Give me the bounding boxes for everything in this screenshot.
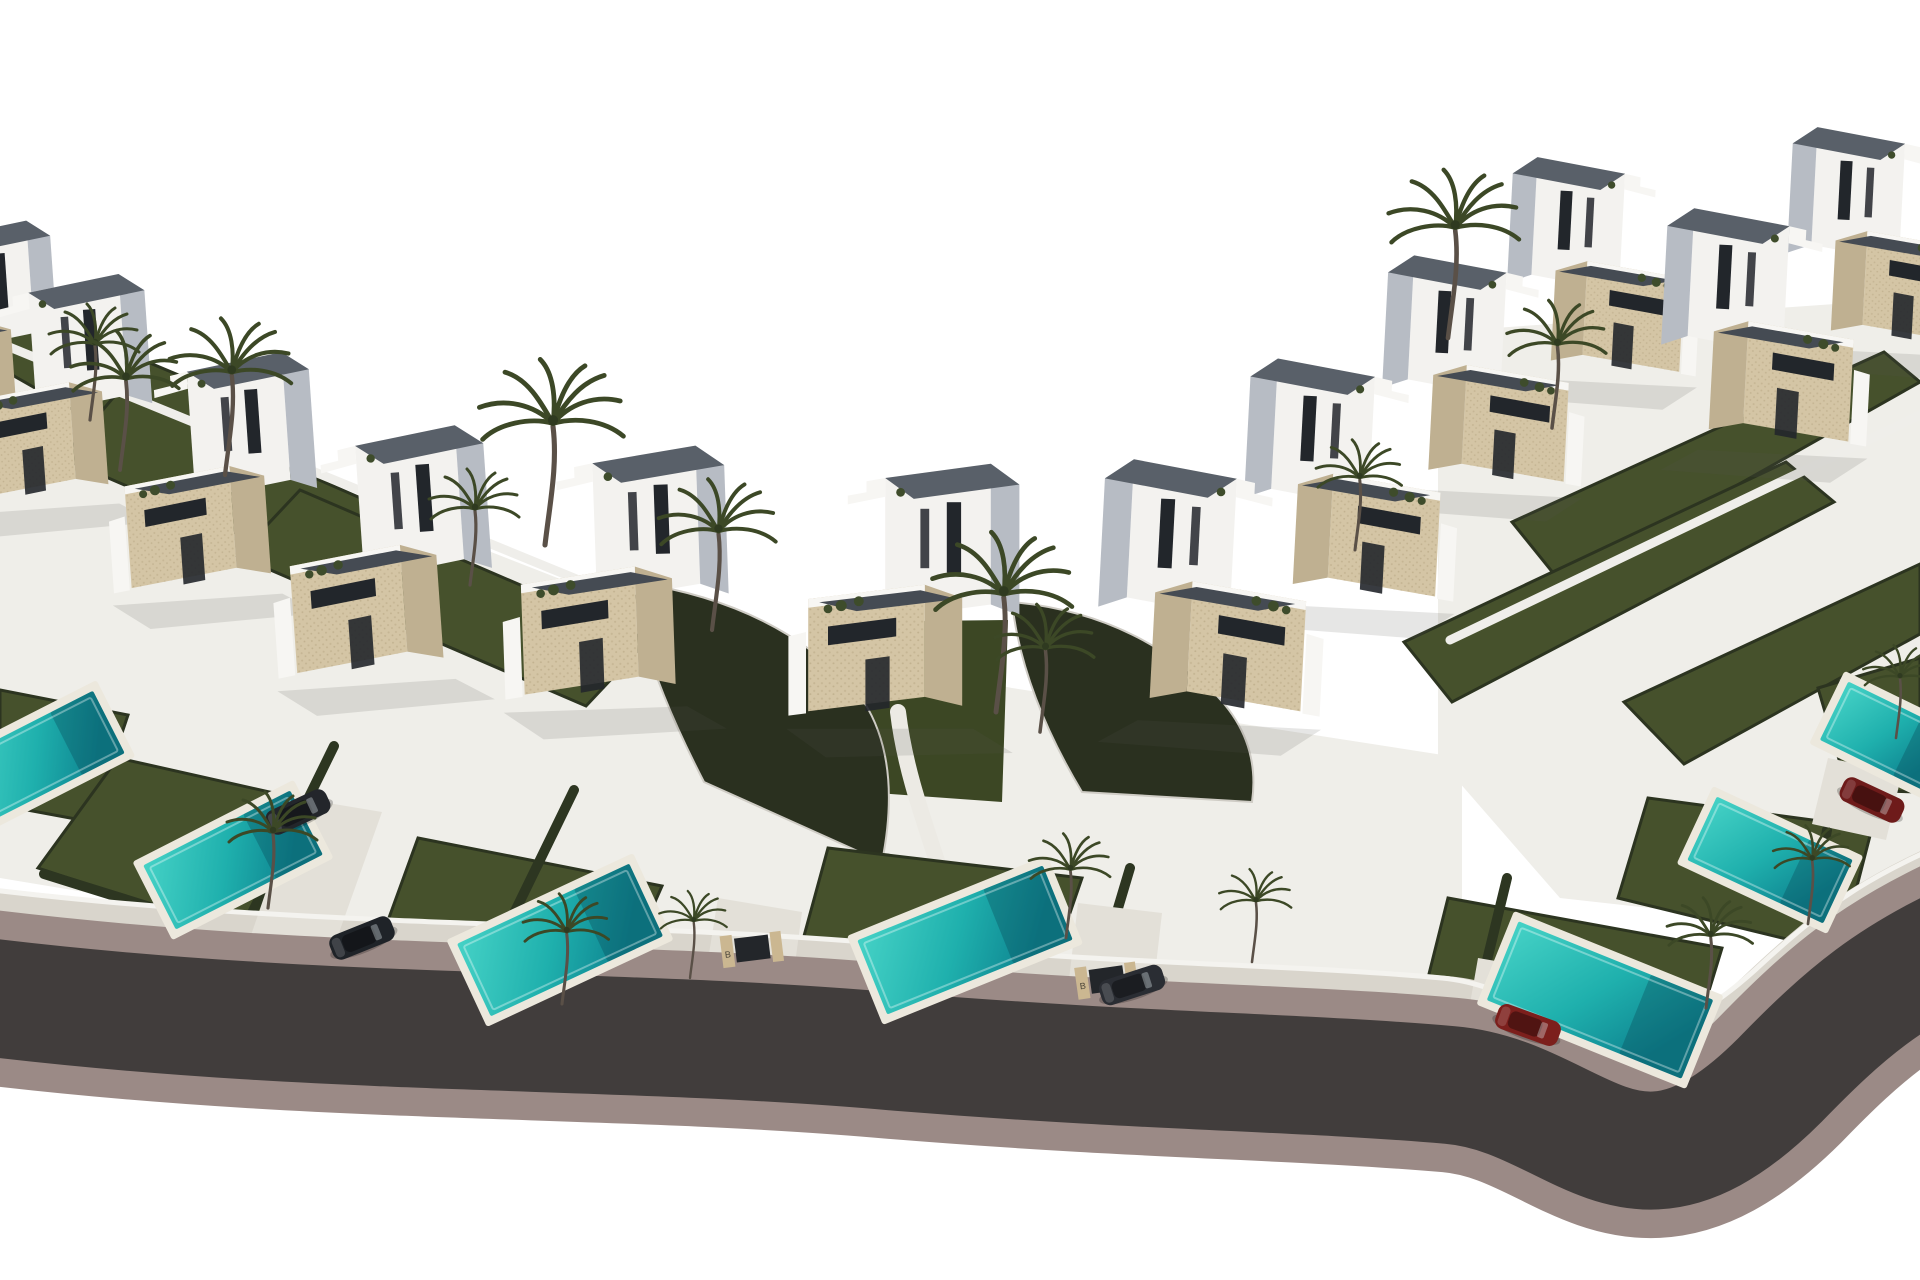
villa-window-slit (947, 502, 961, 572)
villa-door (579, 638, 605, 693)
villa-fin-wall (503, 617, 523, 700)
villa-door (1774, 388, 1799, 439)
villa-window-slit (920, 509, 929, 568)
villa-door (865, 656, 889, 711)
villa-fin-wall (788, 632, 806, 716)
villa-door (1221, 653, 1248, 708)
villa-ground-shadow (786, 729, 1013, 758)
palm-crown-core (691, 917, 696, 922)
palm-crown-core (1253, 897, 1258, 902)
roof-shrub (824, 605, 833, 614)
gate-door (734, 934, 771, 962)
roof-shrub (896, 488, 905, 497)
palm-crown-core (999, 586, 1009, 596)
villa-development-render: Aerial 3D architectural render of a gate… (0, 0, 1920, 1280)
palm-crown-core (1810, 855, 1815, 860)
villa-door (1891, 292, 1914, 339)
villa-door (348, 615, 375, 669)
palm-crown-core (1042, 643, 1049, 650)
roof-shrub (854, 596, 864, 606)
palm-crown-core (714, 524, 722, 532)
villa-door (180, 533, 205, 584)
palm-crown-core (548, 415, 558, 425)
palm-crown-core (1451, 220, 1460, 229)
villa-door (1360, 542, 1385, 594)
palm-crown-core (270, 827, 276, 833)
roof-shrub (836, 600, 847, 611)
gate-emblem: B (724, 949, 731, 960)
palm-crown-core (122, 373, 130, 381)
palm-crown-core (1897, 673, 1902, 678)
render-canvas: Aerial 3D architectural render of a gate… (0, 0, 1920, 1280)
villa-door (22, 446, 46, 495)
palm-crown-core (564, 927, 570, 933)
villa-door (1492, 430, 1516, 480)
palm-crown-core (1068, 865, 1074, 871)
palm-crown-core (1708, 931, 1714, 937)
villa-door (1611, 322, 1634, 369)
palm-crown-core (472, 504, 478, 510)
palm-crown-core (227, 365, 236, 374)
palm-crown-core (1357, 473, 1363, 479)
palm-crown-core (1554, 339, 1561, 346)
